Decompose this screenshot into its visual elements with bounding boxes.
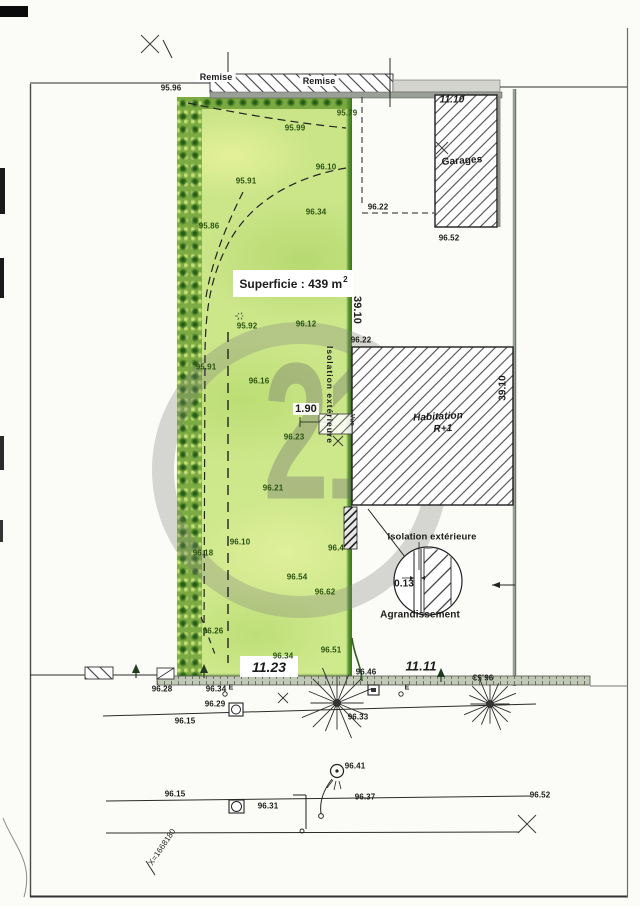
- spot-elevation: 96.41: [345, 762, 366, 771]
- spot-elevation: 96.21: [263, 484, 284, 493]
- spot-elevation: 96.37: [355, 793, 376, 802]
- spot-elevation: 96.23: [284, 433, 305, 442]
- habitation-level-label: R+1: [433, 423, 452, 435]
- spot-elevation: 96.10: [316, 163, 337, 172]
- spot-elevation: 96.52: [439, 234, 460, 243]
- spot-elevation: 96.16: [249, 377, 270, 386]
- spot-elevation: 96.15: [175, 717, 196, 726]
- electric-pole-label: E: [229, 685, 234, 692]
- spot-elevation: 96.10: [230, 538, 251, 547]
- spot-elevation: 96.31: [258, 802, 279, 811]
- spot-elevation: 96.29: [205, 700, 226, 709]
- frontage-dimension: 11.23: [252, 659, 286, 675]
- superficie-box: Superficie : 439 m2: [233, 270, 353, 297]
- vue-label: Vue: [349, 414, 356, 426]
- spot-elevation: 96.26: [203, 627, 224, 636]
- superficie-sup: 2: [343, 275, 347, 284]
- spot-elevation: 95.96: [161, 84, 182, 93]
- spot-elevation: 96.18: [193, 549, 214, 558]
- dimension-label: 1.90: [293, 403, 319, 415]
- dimension-label: 11.10: [440, 95, 465, 106]
- dimension-label: 11.11: [405, 659, 436, 674]
- spot-elevation: 96.12: [296, 320, 317, 329]
- dimension-label: 39.10: [498, 375, 509, 401]
- spot-elevation: 96.52: [530, 791, 551, 800]
- spot-elevation: 96.34: [306, 208, 327, 217]
- spot-elevation: 96.4: [328, 544, 344, 553]
- agrandissement-caption: Agrandissement: [380, 610, 460, 621]
- spot-elevation: 96.15: [165, 790, 186, 799]
- dimension-label: 0.13: [394, 579, 414, 590]
- spot-elevation: 96.28: [152, 685, 173, 694]
- spot-elevation: 95.86: [199, 222, 220, 231]
- spot-elevation: 96.34: [206, 685, 227, 694]
- spot-elevation: 96.22: [351, 336, 372, 345]
- isolation-detail-title: Isolation extérieure: [387, 532, 476, 543]
- spot-elevation: 96.46: [356, 668, 377, 677]
- spot-elevation: 96.53: [473, 673, 494, 682]
- remise-label-left: Remise: [197, 72, 236, 82]
- garage-label: Garages: [441, 154, 482, 168]
- coordinate-x-label: X=1668180: [147, 827, 178, 867]
- site-plan-page: 21: [0, 0, 640, 906]
- spot-elevation: 96.33: [348, 713, 369, 722]
- spot-elevation: 96.54: [287, 573, 308, 582]
- annotation-layer: Remise Remise Garages Habitation R+1 Sup…: [0, 0, 640, 906]
- spot-elevation: 95.79: [337, 109, 358, 118]
- remise-label-right: Remise: [300, 76, 339, 86]
- electric-pole-label: E: [405, 685, 410, 692]
- spot-elevation: 96.62: [315, 588, 336, 597]
- habitation-label: Habitation: [413, 410, 463, 424]
- spot-elevation: 95.92: [237, 322, 258, 331]
- spot-elevation: 95.99: [285, 124, 306, 133]
- spot-elevation: 96.34: [273, 652, 294, 661]
- spot-elevation: 95.91: [236, 177, 257, 186]
- dimension-label: 39.10: [351, 296, 363, 324]
- spot-elevation: 96.22: [368, 203, 389, 212]
- spot-elevation: 96.51: [321, 646, 342, 655]
- spot-elevation: 95.91: [196, 363, 217, 372]
- isolation-boundary-label: Isolation extérieure: [325, 346, 335, 444]
- superficie-text: Superficie : 439 m: [239, 277, 342, 291]
